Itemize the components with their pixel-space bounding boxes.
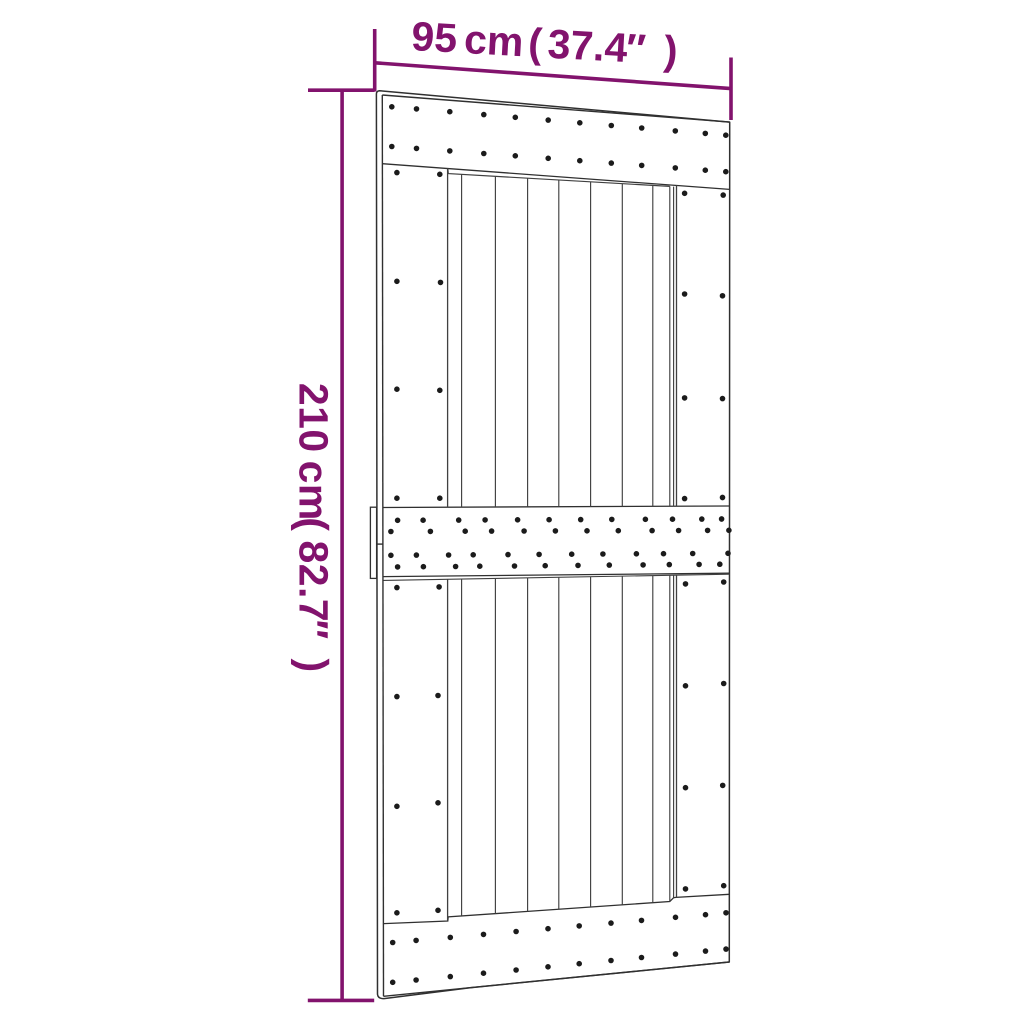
svg-text:210cm(82.7″): 210cm(82.7″) — [291, 383, 337, 673]
svg-text:95cm(37.4″): 95cm(37.4″) — [410, 13, 679, 74]
